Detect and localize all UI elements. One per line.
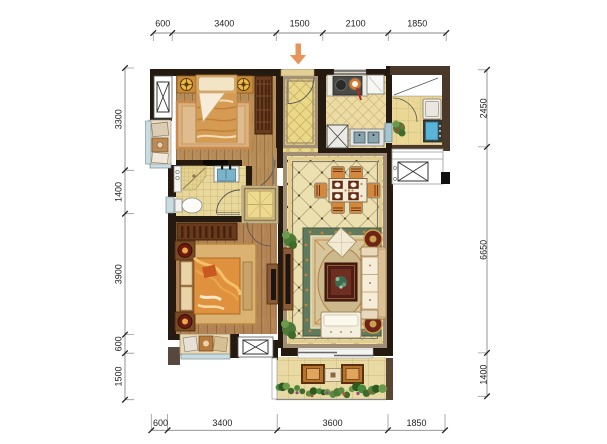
svg-text:1850: 1850	[406, 418, 426, 428]
svg-text:6650: 6650	[479, 240, 489, 260]
svg-text:2450: 2450	[479, 98, 489, 118]
svg-text:600: 600	[114, 336, 124, 351]
svg-text:1850: 1850	[407, 19, 427, 29]
svg-text:3300: 3300	[114, 109, 124, 129]
svg-text:600: 600	[155, 19, 170, 29]
svg-text:1400: 1400	[114, 182, 124, 202]
svg-text:1500: 1500	[290, 19, 310, 29]
svg-text:3600: 3600	[323, 418, 343, 428]
svg-text:3900: 3900	[114, 264, 124, 284]
svg-text:1400: 1400	[479, 365, 489, 385]
svg-text:1500: 1500	[114, 366, 124, 386]
svg-text:3400: 3400	[212, 418, 232, 428]
svg-text:600: 600	[153, 418, 168, 428]
svg-text:3400: 3400	[214, 19, 234, 29]
svg-text:2100: 2100	[346, 19, 366, 29]
